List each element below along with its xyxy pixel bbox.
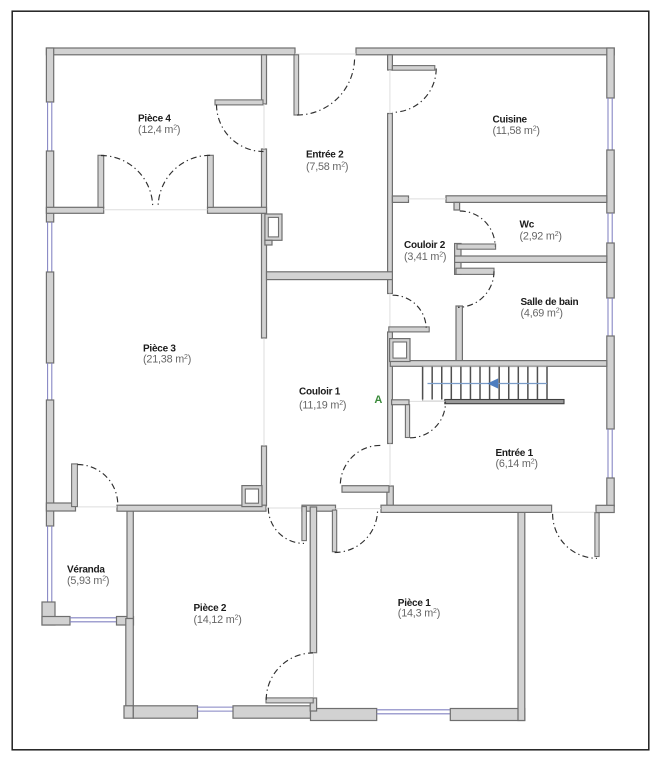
svg-text:Pièce 2: Pièce 2	[194, 603, 227, 614]
svg-text:Entrée 2: Entrée 2	[306, 149, 344, 160]
svg-text:Salle de bain: Salle de bain	[521, 297, 579, 308]
svg-text:Cuisine: Cuisine	[493, 114, 528, 125]
svg-text:(14,12 m2): (14,12 m2)	[194, 614, 242, 626]
svg-text:Véranda: Véranda	[67, 564, 105, 575]
svg-text:Wc: Wc	[520, 219, 535, 230]
svg-text:Couloir 1: Couloir 1	[299, 387, 341, 398]
svg-text:Couloir 2: Couloir 2	[404, 240, 446, 251]
svg-text:(21,38 m2): (21,38 m2)	[143, 354, 191, 366]
svg-text:A: A	[374, 394, 382, 406]
